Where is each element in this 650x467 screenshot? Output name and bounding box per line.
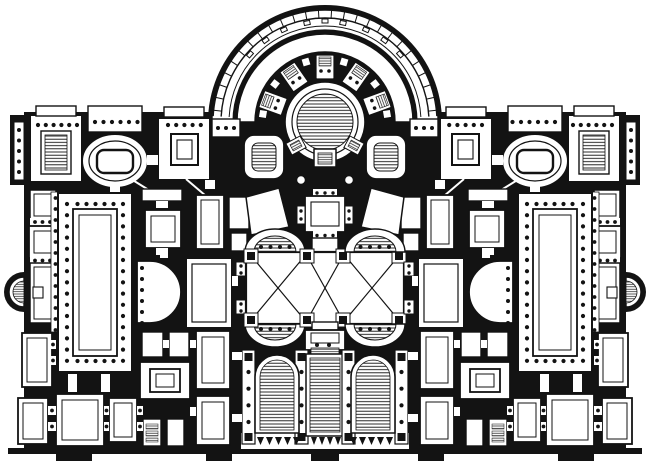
peristyle-colonnade-top xyxy=(534,202,538,206)
stem xyxy=(454,407,460,416)
south-room-small xyxy=(109,398,137,442)
oval-hall xyxy=(502,134,568,188)
peristyle-colonnade-bottom xyxy=(111,359,115,363)
square-hall-dots xyxy=(166,123,170,127)
peristyle-colonnade-left xyxy=(65,258,69,262)
peristyle-colonnade-top xyxy=(102,202,106,206)
peristyle-colonnade-bottom xyxy=(543,359,547,363)
hall-apse-south xyxy=(269,327,273,331)
peristyle-colonnade-right xyxy=(525,269,529,273)
hall-side-tab-dots xyxy=(239,309,242,312)
square-hall-dots xyxy=(199,123,203,127)
pool-pier-strip xyxy=(299,403,303,407)
peristyle-colonnade-left xyxy=(65,336,69,340)
outer-colonnade-dots xyxy=(629,160,633,164)
corner-hall-porch xyxy=(574,106,614,116)
peristyle-colonnade-left xyxy=(581,325,585,329)
peristyle-colonnade-left xyxy=(65,269,69,273)
peristyle-colonnade-right xyxy=(121,348,125,352)
d-room-dots xyxy=(506,266,510,270)
pool-pier-strip xyxy=(399,387,403,391)
pier-dots xyxy=(542,425,546,429)
stem xyxy=(147,155,158,165)
peristyle-colonnade-right xyxy=(121,303,125,307)
peristyle-colonnade-left xyxy=(65,292,69,296)
stem xyxy=(492,155,503,165)
vestibule-dots-bottom xyxy=(331,234,334,237)
pool-pier-strip xyxy=(246,420,250,424)
pier-dots xyxy=(542,409,546,413)
d-room-dots xyxy=(506,299,510,303)
cloister-dots xyxy=(593,207,597,211)
peristyle-colonnade-right xyxy=(121,336,125,340)
pier-dots xyxy=(595,359,599,363)
peristyle-colonnade-top xyxy=(111,202,115,206)
edge-band-dots xyxy=(606,220,610,224)
peristyle-colonnade-right xyxy=(525,359,529,363)
pier-dots xyxy=(138,425,142,429)
flank-porch-dots xyxy=(414,126,434,130)
corner-hall-floor xyxy=(45,135,67,170)
square-hall-dots xyxy=(464,123,468,127)
peristyle-colonnade-left xyxy=(581,224,585,228)
hall-side-tab-dots xyxy=(239,302,242,305)
pier-dots xyxy=(105,425,109,429)
d-room-dots xyxy=(140,299,144,303)
d-room-dots xyxy=(140,288,144,292)
apsed-pool xyxy=(351,355,395,433)
peristyle-colonnade-right xyxy=(121,292,125,296)
flank-porch-dots xyxy=(224,126,228,130)
rotunda-niche xyxy=(258,109,267,118)
cloister-dots xyxy=(54,317,58,321)
bottom-step xyxy=(418,454,444,461)
peristyle-colonnade-top xyxy=(93,202,97,206)
peristyle-colonnade-left xyxy=(581,280,585,284)
pier-dots xyxy=(50,425,54,429)
cloister-dots xyxy=(54,273,58,277)
hall-apse-south xyxy=(387,327,391,331)
flank-porch-dots xyxy=(216,126,236,130)
round-corner-room-floor xyxy=(374,143,398,171)
square-hall-dots xyxy=(480,123,484,127)
oval-hall-porch-dots xyxy=(118,120,122,124)
peristyle-colonnade-top xyxy=(84,202,88,206)
square-hall-dots xyxy=(174,123,178,127)
pool-pier-strip xyxy=(246,387,250,391)
peristyle-colonnade-left xyxy=(65,224,69,228)
cloister-dots xyxy=(593,273,597,277)
peristyle-colonnade-left xyxy=(65,314,69,318)
peristyle-colonnade-left xyxy=(581,258,585,262)
south-col-room-b xyxy=(196,396,230,445)
rotunda-aedicula xyxy=(316,55,334,79)
peristyle-colonnade-bottom xyxy=(75,359,79,363)
stair-marks xyxy=(146,431,158,436)
south-col-room-b xyxy=(420,396,454,445)
peristyle-colonnade-left xyxy=(581,348,585,352)
peristyle-colonnade-right xyxy=(121,202,125,363)
peristyle-colonnade-right xyxy=(525,247,529,251)
cloister-dots xyxy=(54,262,58,266)
pier-dots xyxy=(596,425,600,429)
vestibule-dots-top xyxy=(331,191,334,194)
peristyle-colonnade-right xyxy=(121,325,125,329)
peristyle-colonnade-left xyxy=(581,269,585,273)
atrium-room xyxy=(140,362,190,399)
pool-pier-strip xyxy=(346,403,350,407)
pier-dots xyxy=(595,343,599,347)
stem xyxy=(232,276,238,286)
stem xyxy=(190,340,196,348)
stem xyxy=(163,340,169,348)
peristyle-colonnade-right xyxy=(525,348,529,352)
corner-hall-dots xyxy=(610,123,614,127)
peristyle-colonnade-bottom xyxy=(534,359,538,363)
hall-apse-south xyxy=(378,327,382,331)
square-hall-dots xyxy=(191,123,195,127)
cloister-dots xyxy=(593,295,597,299)
edge-band-dots xyxy=(33,259,37,263)
oval-hall-porch-dots xyxy=(544,120,548,124)
pier-dots xyxy=(596,409,600,413)
peristyle-colonnade-top xyxy=(552,202,556,206)
vestibule-tab xyxy=(345,206,353,224)
stair-room-2 xyxy=(466,419,483,446)
peristyle-colonnade-left xyxy=(65,213,69,217)
hall-side-tab-dots xyxy=(407,264,410,267)
hall-side-tab-dots xyxy=(407,309,410,312)
vestibule-tab-dots xyxy=(299,217,302,220)
mid-room xyxy=(196,195,224,249)
cloister-dots xyxy=(593,196,597,200)
corner-hall-dots xyxy=(571,123,575,127)
peristyle-colonnade-left xyxy=(65,325,69,329)
oval-hall-porch-dots xyxy=(519,120,523,124)
square-hall-dots xyxy=(447,123,451,127)
stem xyxy=(481,340,487,348)
cloister-dots xyxy=(593,317,597,321)
rotunda-throat-hatch xyxy=(318,153,332,164)
pier-dots xyxy=(138,409,142,413)
vestibule-dots-bottom xyxy=(323,234,326,237)
vestibule-tab-dots xyxy=(347,217,350,220)
outer-colonnade-dots xyxy=(17,128,21,132)
peristyle-colonnade-left xyxy=(581,303,585,307)
peristyle-colonnade-right xyxy=(121,359,125,363)
flank-porch-dots xyxy=(430,126,434,130)
bottom-step xyxy=(558,454,594,461)
bottom-step xyxy=(56,454,92,461)
corner-hall-dots xyxy=(44,123,48,127)
south-vestibule-dots xyxy=(315,343,319,347)
pier-dots xyxy=(105,409,109,413)
pool-pier-strip xyxy=(395,350,408,444)
peristyle-colonnade-left xyxy=(65,348,69,352)
peristyle-colonnade-left xyxy=(65,303,69,307)
stem xyxy=(205,180,215,189)
outer-colonnade-dots xyxy=(17,170,21,174)
peristyle-colonnade-bottom xyxy=(93,359,97,363)
hall-apse-north xyxy=(259,245,263,249)
stair-marks xyxy=(146,438,158,442)
peristyle-colonnade-right xyxy=(121,269,125,273)
corner-hall-dots xyxy=(36,123,40,127)
pier-dots xyxy=(51,359,55,363)
peristyle-colonnade-right xyxy=(525,224,529,228)
pool-pier-strip xyxy=(246,403,250,407)
vestibule-tab-dots xyxy=(299,209,302,212)
south-room-small xyxy=(513,398,541,442)
hall-side-tab-dots xyxy=(407,302,410,305)
pier-dots xyxy=(508,409,512,413)
bottom-step-center xyxy=(311,454,339,461)
peristyle-colonnade-right xyxy=(121,258,125,262)
pool-pier-strip xyxy=(299,420,303,424)
peristyle-colonnade-right xyxy=(121,202,125,206)
edge-band-dots xyxy=(606,259,610,263)
hall-apse-north xyxy=(269,245,273,249)
vestibule-tab xyxy=(297,206,305,224)
cloister-dots xyxy=(593,328,597,332)
d-room-dots xyxy=(506,277,510,281)
corner-hall-dots xyxy=(602,123,606,127)
peristyle-colonnade-left xyxy=(581,202,585,206)
outer-colonnade-dots xyxy=(17,149,21,153)
peristyle-colonnade-right xyxy=(525,280,529,284)
atrium-room xyxy=(460,362,510,399)
peristyle-colonnade-right xyxy=(121,224,125,228)
cloister-dots xyxy=(593,240,597,244)
hall-apse-south xyxy=(278,327,282,331)
square-hall-porch xyxy=(446,107,486,117)
cloister-dots xyxy=(54,240,58,244)
rotunda-niche xyxy=(382,109,391,118)
stem xyxy=(435,180,445,189)
vestibule-dots-top xyxy=(315,191,318,194)
oval-hall-porch-dots xyxy=(527,120,531,124)
south-col-room-a xyxy=(420,331,454,389)
stem xyxy=(573,374,582,392)
corner-hall-dots xyxy=(579,123,583,127)
service-room xyxy=(169,332,189,357)
cloister-dots xyxy=(593,306,597,310)
square-hall-dots xyxy=(182,123,186,127)
pool-pier-strip xyxy=(399,370,403,374)
edge-band-dots xyxy=(41,220,45,224)
edge-room-3-door xyxy=(33,287,43,298)
cloister-dots xyxy=(593,284,597,288)
corner-hall-dots xyxy=(75,123,79,127)
cloister-dots xyxy=(54,218,58,222)
cloister-dots xyxy=(54,196,58,200)
outer-colonnade-dots xyxy=(629,149,633,153)
cloister-dots xyxy=(593,262,597,266)
peristyle-colonnade-right xyxy=(121,236,125,240)
pier-dots xyxy=(51,343,55,347)
square-hall xyxy=(158,118,210,180)
d-room-dots xyxy=(140,310,144,314)
vestibule-dots-top xyxy=(323,191,326,194)
edge-band-dots xyxy=(33,220,37,224)
cloister-dots xyxy=(54,306,58,310)
peristyle-colonnade-right xyxy=(525,202,529,363)
south-col-room-a xyxy=(196,331,230,389)
stair-marks xyxy=(492,438,504,442)
outer-colonnade-dots xyxy=(17,139,21,143)
cloister-dots xyxy=(54,207,58,211)
oval-hall-porch-dots xyxy=(93,120,97,124)
column-ring xyxy=(345,176,354,185)
bar-room xyxy=(142,189,182,201)
peristyle-court xyxy=(58,193,132,372)
arc-bead xyxy=(340,20,347,25)
edge-band-dots xyxy=(33,259,52,263)
outer-colonnade-dots xyxy=(629,128,633,132)
round-corner-room-floor xyxy=(252,143,276,171)
floor-plan-figure xyxy=(0,0,650,467)
pool-pier-strip xyxy=(246,370,250,374)
peristyle-colonnade-bottom xyxy=(552,359,556,363)
column-ring xyxy=(297,176,306,185)
mid-room xyxy=(426,195,454,249)
stem xyxy=(232,352,242,360)
rotunda-niche xyxy=(301,57,311,67)
cloister-dots xyxy=(54,229,58,233)
d-room-dots xyxy=(506,310,510,314)
arc-bead xyxy=(304,20,311,25)
cloister-dots xyxy=(593,218,597,222)
stair-marks xyxy=(492,431,504,436)
cloister-dots xyxy=(593,229,597,233)
corner-hall-dots xyxy=(594,123,598,127)
corner-hall-dots xyxy=(59,123,63,127)
d-room-dots xyxy=(140,266,144,270)
oval-hall-porch-dots xyxy=(536,120,540,124)
stem xyxy=(68,374,77,392)
vestibule-dots-top xyxy=(315,191,334,194)
peristyle-colonnade-right xyxy=(121,280,125,284)
d-room-dots xyxy=(506,321,510,325)
vestibule-dots-bottom xyxy=(315,234,318,237)
peristyle-colonnade-left xyxy=(65,236,69,240)
peristyle-colonnade-right xyxy=(525,202,529,206)
hall-side-tab-dots xyxy=(239,264,242,267)
cloister-dots xyxy=(593,251,597,255)
peristyle-colonnade-left xyxy=(581,247,585,251)
hall-side-tab-dots xyxy=(239,271,242,274)
corner-hall-dots xyxy=(67,123,71,127)
peristyle-colonnade-top xyxy=(75,202,79,206)
stair-marks xyxy=(492,424,504,429)
peristyle-colonnade-left xyxy=(581,336,585,340)
edge-band-dots xyxy=(33,220,52,224)
hall-pier xyxy=(244,249,258,263)
peristyle-colonnade-top xyxy=(561,202,565,206)
peristyle-colonnade-right xyxy=(525,292,529,296)
cloister-dots xyxy=(54,295,58,299)
peristyle-colonnade-left xyxy=(65,280,69,284)
cloister-dots xyxy=(54,284,58,288)
flank-porch-dots xyxy=(232,126,236,130)
peristyle-colonnade-left xyxy=(581,202,585,363)
peristyle-colonnade-top xyxy=(543,202,547,206)
peristyle-colonnade-right xyxy=(525,303,529,307)
edge-band-dots xyxy=(613,220,617,224)
pool-pier-strip xyxy=(299,370,303,374)
pool-pier-strip xyxy=(299,387,303,391)
peristyle-colonnade-left xyxy=(65,202,69,206)
d-room-dots xyxy=(506,288,510,292)
small-room xyxy=(403,233,419,251)
pool-pier-strip xyxy=(346,370,350,374)
hall-apse-south xyxy=(359,327,363,331)
pier-dots xyxy=(50,409,54,413)
flank-porch-dots xyxy=(422,126,426,130)
apsed-pool xyxy=(255,355,299,433)
vestibule-dots-bottom xyxy=(315,234,334,237)
hall-apse-north xyxy=(278,245,282,249)
hall-side-tab-dots xyxy=(407,271,410,274)
oval-hall-porch-dots xyxy=(101,120,105,124)
stem xyxy=(232,414,242,422)
service-room xyxy=(142,332,163,357)
hall-apse-north xyxy=(378,245,382,249)
peristyle-colonnade-left xyxy=(581,213,585,217)
vestibule-tab-dots xyxy=(347,209,350,212)
stem xyxy=(101,374,110,392)
bar-room xyxy=(468,189,508,201)
flank-porch-dots xyxy=(414,126,418,130)
peristyle-colonnade-left xyxy=(65,202,69,363)
oval-hall-porch xyxy=(508,106,562,132)
stair-marks xyxy=(146,424,158,429)
peristyle-colonnade-top xyxy=(570,202,574,206)
peristyle-colonnade-bottom xyxy=(570,359,574,363)
stem xyxy=(540,374,549,392)
hall-apse-south xyxy=(288,327,292,331)
small-room xyxy=(231,233,247,251)
edge-room-3-door xyxy=(607,287,617,298)
peristyle-colonnade-left xyxy=(65,359,69,363)
corner-hall-porch xyxy=(36,106,76,116)
d-room-dots xyxy=(140,277,144,281)
square-hall-porch xyxy=(164,107,204,117)
pool-pier-strip xyxy=(242,350,255,444)
square-hall xyxy=(440,118,492,180)
stem xyxy=(482,201,494,208)
stem xyxy=(454,340,460,348)
pool-pier-strip xyxy=(399,403,403,407)
stem xyxy=(412,276,418,286)
oval-hall-porch-dots xyxy=(510,120,514,124)
stem xyxy=(408,352,418,360)
stem xyxy=(408,414,418,422)
edge-band-dots xyxy=(598,259,617,263)
rotunda-hall-floor xyxy=(297,94,353,150)
peristyle-colonnade-right xyxy=(525,236,529,240)
peristyle-colonnade-right xyxy=(121,213,125,217)
corner-hall-floor xyxy=(583,135,605,170)
rotunda-niche xyxy=(339,57,349,67)
hall-apse-north xyxy=(359,245,363,249)
peristyle-colonnade-left xyxy=(581,236,585,240)
bath-plan-page xyxy=(0,0,650,467)
edge-band-dots xyxy=(598,220,617,224)
pier-dots xyxy=(508,425,512,429)
service-room xyxy=(461,332,481,357)
south-room-big xyxy=(56,394,104,446)
